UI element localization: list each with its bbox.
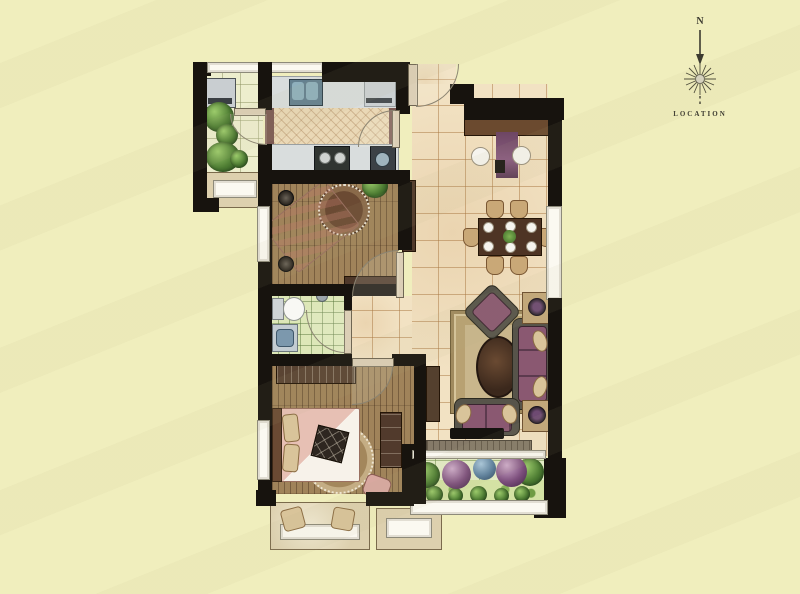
table-lamp	[528, 406, 546, 424]
decor-bowl	[471, 147, 490, 166]
decor-bowl	[512, 146, 531, 165]
bedside-stool	[278, 190, 294, 206]
dining-chair	[486, 200, 504, 219]
kitchen-appliance-door	[375, 152, 390, 167]
window-ledge-cushion	[386, 518, 432, 538]
bed-pillow	[282, 443, 300, 472]
window	[546, 206, 562, 300]
kitchen-sink-basin	[306, 82, 318, 100]
decor-object	[495, 160, 505, 173]
plate	[526, 241, 537, 252]
bed-pillow	[282, 413, 301, 443]
toilet-bowl	[283, 297, 305, 321]
compass: N LOCATION	[658, 6, 742, 118]
wall	[193, 198, 219, 212]
dining-chair	[510, 200, 528, 219]
window	[207, 62, 265, 73]
dresser-lower	[380, 412, 402, 468]
wall	[262, 354, 352, 366]
potted-plant	[230, 150, 248, 168]
dining-chair	[510, 256, 528, 275]
refrigerator-band	[366, 98, 392, 103]
decor-sphere	[473, 457, 496, 480]
display-cabinet	[426, 366, 440, 422]
table-lamp	[528, 298, 546, 316]
wall	[366, 492, 414, 506]
wardrobe	[276, 364, 356, 384]
wall	[548, 298, 562, 458]
plate	[483, 222, 494, 233]
plate	[483, 241, 494, 252]
balcony-railing	[410, 500, 548, 515]
bathroom-sink-basin	[276, 329, 294, 347]
centerpiece	[503, 230, 516, 243]
wall	[256, 490, 276, 506]
kitchen-sink-basin	[292, 82, 304, 100]
wall	[548, 112, 562, 206]
dining-chair	[486, 256, 504, 275]
wall	[414, 354, 426, 504]
balcony-slider	[412, 450, 546, 459]
bed-headboard	[272, 408, 282, 482]
stove-burner	[319, 152, 331, 164]
bathroom-door-leaf	[344, 310, 352, 354]
decor-sphere	[442, 460, 471, 489]
wall	[193, 62, 207, 210]
wall	[262, 170, 410, 184]
compass-location-label: LOCATION	[673, 110, 727, 118]
compass-north-label: N	[696, 16, 704, 27]
laundry-bay-window-sill	[213, 180, 257, 198]
window	[257, 206, 270, 262]
compass-star-center	[696, 75, 705, 84]
window	[257, 420, 270, 480]
plate	[505, 242, 516, 253]
stove-burner	[334, 152, 346, 164]
floor-plan-canvas: N LOCATION	[0, 0, 800, 594]
wall	[258, 62, 272, 110]
decor-sphere	[496, 456, 527, 487]
bedside-stool	[278, 256, 294, 272]
wall	[398, 182, 412, 250]
tv	[450, 428, 504, 439]
seat-pillow	[330, 506, 355, 531]
plate	[526, 222, 537, 233]
window	[263, 62, 324, 73]
